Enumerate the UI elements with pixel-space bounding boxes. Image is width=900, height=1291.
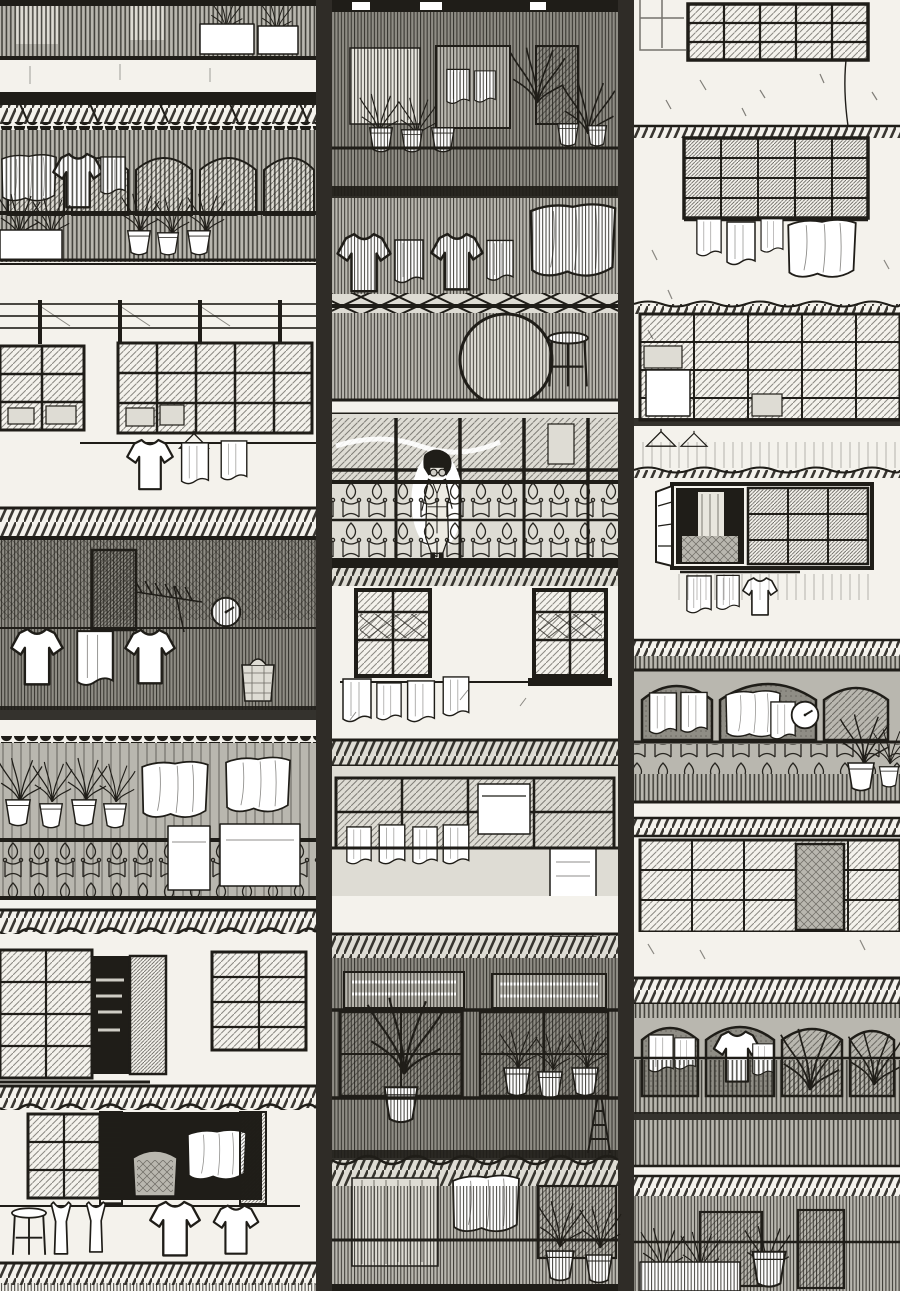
laundry-towel [771, 702, 795, 739]
plant-pot [40, 804, 63, 828]
plant-pot [72, 800, 96, 826]
window [0, 346, 84, 430]
middle-balcony-stool [332, 313, 618, 414]
left-window-floor [0, 343, 316, 508]
wicker-chair [133, 1151, 177, 1196]
laundry-sheet [226, 757, 290, 811]
window [528, 590, 612, 686]
laundry-towel [650, 693, 677, 734]
cabinet [478, 784, 530, 834]
awning-fringe [0, 122, 316, 130]
left-parapet-balcony [0, 0, 316, 61]
plant-pot [188, 231, 211, 255]
middle-lowest-cage [332, 1156, 621, 1291]
stacked-boxes [752, 394, 782, 416]
left-awning-low [0, 900, 316, 936]
planter-box [258, 26, 298, 54]
right-window-wall [634, 818, 900, 932]
laundry-basket [242, 659, 274, 701]
left-beam-band [0, 262, 316, 344]
plant-pot [6, 800, 30, 826]
laundry-sheet [142, 762, 208, 817]
cross-brace-rail [332, 293, 618, 313]
stacked-boxes [644, 346, 682, 368]
left-shutter-floor [0, 934, 316, 1082]
open-shutter [100, 1112, 122, 1204]
laundry-towel [727, 222, 755, 265]
facade-illustration: Crowded apartment facade [0, 0, 900, 1291]
left-slab-awning [0, 60, 316, 130]
plant-pot [848, 763, 874, 791]
window [28, 1114, 100, 1198]
right-arched-balcony-2 [634, 932, 900, 1120]
laundry-towel [761, 219, 783, 252]
plant-pot [128, 231, 151, 255]
plant-pot [158, 233, 179, 255]
laundry-towel [443, 825, 469, 864]
middle-lattice-floor [332, 586, 618, 740]
plant-pot [879, 767, 898, 787]
laundry-towel [182, 443, 209, 484]
laundry-towel [347, 827, 371, 864]
left-ornate-balcony [0, 720, 316, 900]
structural-post-left [316, 0, 332, 1291]
left-awning-mid [0, 508, 316, 538]
open-shutter [656, 486, 672, 566]
left-awning-lower [0, 1086, 316, 1112]
plant-pot [104, 804, 127, 828]
arch [720, 684, 818, 740]
fence [0, 1283, 316, 1291]
ornate-railing [332, 484, 618, 560]
laundry-towel [77, 631, 112, 685]
window [356, 590, 430, 676]
window [118, 343, 312, 433]
towel-on-railing [168, 826, 210, 890]
laundry-towel [221, 441, 247, 480]
middle-big-cage [332, 906, 618, 1160]
right-building [634, 0, 900, 1291]
structural-post-right [618, 0, 634, 1291]
middle-building [316, 0, 634, 1291]
window [212, 952, 306, 1050]
arch [642, 686, 712, 740]
right-glazed-band [634, 302, 900, 471]
interior-shelf [548, 424, 574, 464]
windowsill [528, 678, 612, 686]
middle-balcony-laundry [332, 198, 618, 313]
arch [824, 688, 888, 740]
open-doorway [92, 956, 130, 1074]
hanging-sheet [188, 1130, 246, 1179]
planter-box [0, 230, 62, 260]
stacked-boxes [646, 370, 690, 416]
window [0, 950, 92, 1078]
window [748, 488, 868, 564]
right-arched-balcony [634, 640, 900, 818]
left-open-room-floor [0, 1110, 316, 1291]
open-shutter [240, 1112, 266, 1204]
wall-clock [792, 702, 819, 729]
left-caged-balcony [0, 540, 316, 720]
laundry-towel [377, 683, 401, 720]
towel-on-railing [220, 824, 300, 886]
left-building [0, 0, 316, 1291]
left-arched-balcony [0, 130, 316, 262]
planter-box [200, 24, 254, 54]
laundry-towel [343, 679, 371, 722]
middle-balcony-curtains [332, 0, 618, 198]
laundry-sheet [788, 220, 856, 277]
right-bottom-cage [634, 1120, 900, 1291]
open-shutter [130, 956, 166, 1074]
laundry-towel [681, 692, 707, 732]
right-shutter-floor [634, 468, 900, 615]
laundry-towel [443, 677, 469, 716]
laundry-towel [413, 827, 437, 864]
laundry-towel [697, 219, 721, 256]
laundry-towel [408, 681, 435, 722]
illustration-canvas: Crowded apartment facade [0, 0, 900, 1291]
middle-figure-balcony [332, 414, 618, 586]
laundry-towel [379, 825, 405, 864]
